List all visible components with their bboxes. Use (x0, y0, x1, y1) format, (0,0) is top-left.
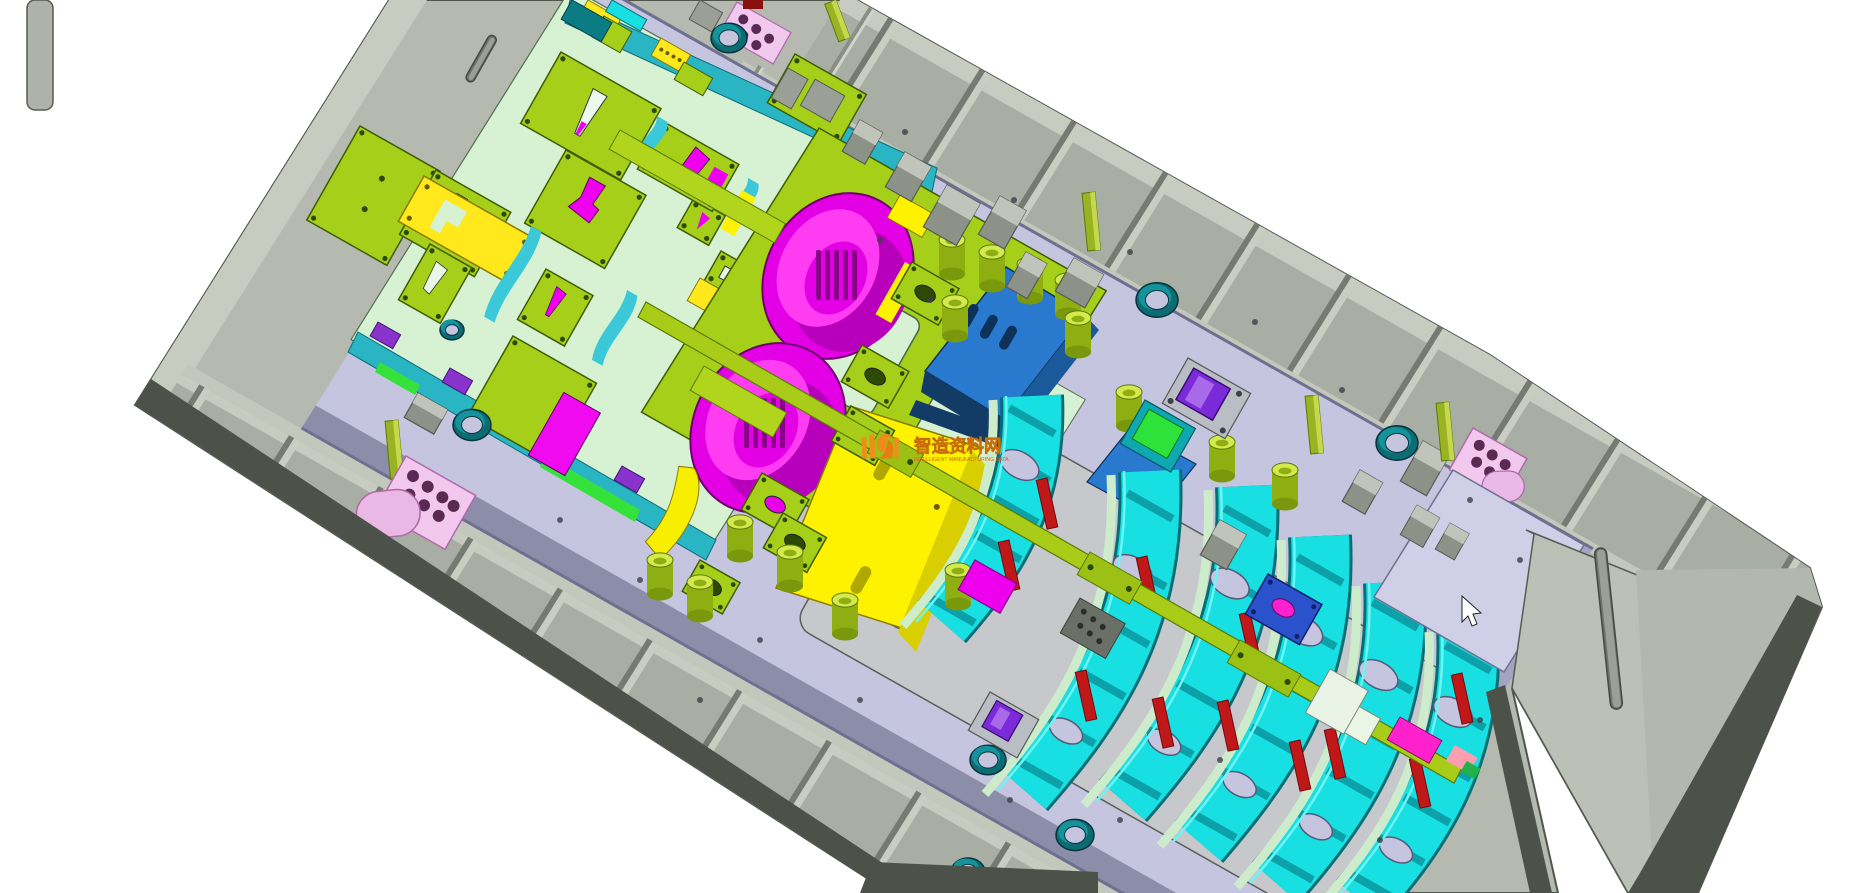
svg-text:INTELLIGENT MANUFACTURING DATA: INTELLIGENT MANUFACTURING DATA (914, 457, 1009, 463)
svg-text:智造资料网: 智造资料网 (914, 436, 1002, 456)
